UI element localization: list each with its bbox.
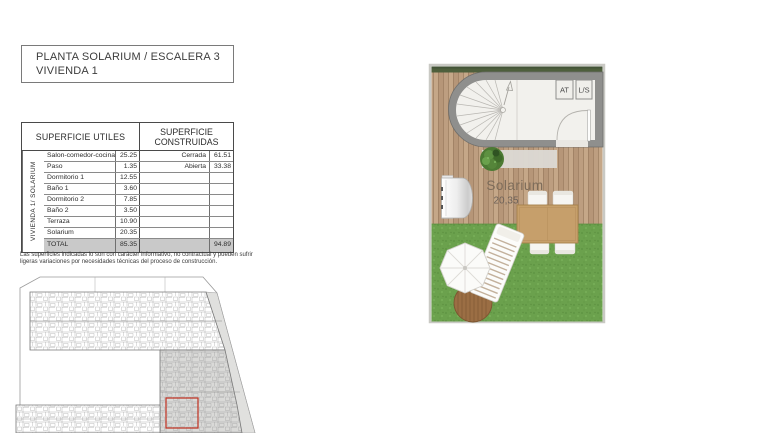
- building-bottom-wing: [16, 405, 160, 433]
- header-superficie-construidas: SUPERFICIE CONSTRUIDAS: [140, 123, 233, 150]
- room-name: Terraza: [44, 217, 116, 227]
- row-group-label: VIVIENDA 1/ SOLARIUM: [22, 151, 44, 252]
- room-area-value: 10.90: [116, 217, 140, 227]
- room-area-value: 1.35: [116, 162, 140, 172]
- room-name: Baño 2: [44, 206, 116, 216]
- table-row: Baño 2 3.50: [44, 206, 233, 217]
- site-key-plan: [10, 272, 262, 433]
- closet-ls-label: L/S: [578, 86, 589, 95]
- room-name: Paso: [44, 162, 116, 172]
- room-name: Salon-comedor-cocina: [44, 151, 116, 161]
- plant-icon: [480, 147, 504, 171]
- total-construidas-value: 94.89: [210, 239, 233, 252]
- construida-label: Abierta: [140, 162, 210, 172]
- parasol-icon: [440, 243, 490, 293]
- table-row: Terraza 10.90: [44, 217, 233, 228]
- construida-label: [140, 206, 210, 216]
- table-row: Solarium 20.35: [44, 228, 233, 239]
- door-leaf: [588, 110, 591, 141]
- sheet-title-line1: PLANTA SOLARIUM / ESCALERA 3: [36, 51, 233, 65]
- room-name: Baño 1: [44, 184, 116, 194]
- plan-sheet: PLANTA SOLARIUM / ESCALERA 3 VIVIENDA 1 …: [0, 0, 770, 433]
- room-area-value: 20.35: [116, 228, 140, 238]
- room-area-value: 12.55: [116, 173, 140, 183]
- room-area-value: 3.50: [116, 206, 140, 216]
- areas-table-header: SUPERFICIE UTILES SUPERFICIE CONSTRUIDAS: [22, 123, 233, 151]
- construida-label: [140, 195, 210, 205]
- room-name: Solarium: [44, 228, 116, 238]
- construida-label: [140, 228, 210, 238]
- closet-at: AT: [556, 80, 573, 99]
- construida-label: [140, 173, 210, 183]
- construida-value: [210, 173, 233, 183]
- table-total-row: TOTAL 85.35 94.89: [44, 239, 233, 252]
- closet-at-label: AT: [560, 86, 569, 95]
- dining-table: [517, 205, 578, 243]
- total-label: TOTAL: [44, 239, 116, 252]
- construida-label: [140, 184, 210, 194]
- room-area-value: 7.85: [116, 195, 140, 205]
- total-construida-spacer: [140, 239, 210, 252]
- room-area-value: 3.60: [116, 184, 140, 194]
- table-row: Dormitorio 1 12.55: [44, 173, 233, 184]
- ac-unit: [441, 176, 473, 219]
- total-utiles-value: 85.35: [116, 239, 140, 252]
- table-row: Salon-comedor-cocina 25.25 Cerrada 61.51: [44, 151, 233, 162]
- solarium-floor-plan: AT L/S: [428, 63, 608, 325]
- table-row: Dormitorio 2 7.85: [44, 195, 233, 206]
- room-area-value: 25.25: [116, 151, 140, 161]
- construida-value: 61.51: [210, 151, 233, 161]
- building-upper-wing: [30, 292, 225, 350]
- room-area-label: 20,35: [493, 196, 518, 207]
- construida-value: [210, 217, 233, 227]
- closet-ls: L/S: [576, 80, 592, 99]
- disclaimer-footnote: Las superficies indicadas lo son con car…: [20, 252, 258, 267]
- construida-value: [210, 195, 233, 205]
- sheet-title-line2: VIVIENDA 1: [36, 65, 233, 79]
- chair: [528, 191, 547, 206]
- construida-value: [210, 184, 233, 194]
- header-superficie-utiles: SUPERFICIE UTILES: [22, 123, 140, 150]
- table-row: Baño 1 3.60: [44, 184, 233, 195]
- construida-value: [210, 228, 233, 238]
- room-name: Dormitorio 2: [44, 195, 116, 205]
- construida-label: Cerrada: [140, 151, 210, 161]
- title-block: PLANTA SOLARIUM / ESCALERA 3 VIVIENDA 1: [21, 45, 234, 83]
- room-interior: [456, 80, 595, 140]
- construida-value: 33.38: [210, 162, 233, 172]
- areas-table: SUPERFICIE UTILES SUPERFICIE CONSTRUIDAS…: [21, 122, 234, 253]
- construida-label: [140, 217, 210, 227]
- construida-value: [210, 206, 233, 216]
- table-row: Paso 1.35 Abierta 33.38: [44, 162, 233, 173]
- chair: [553, 191, 573, 206]
- areas-table-rows: Salon-comedor-cocina 25.25 Cerrada 61.51…: [44, 151, 233, 252]
- room-name: Dormitorio 1: [44, 173, 116, 183]
